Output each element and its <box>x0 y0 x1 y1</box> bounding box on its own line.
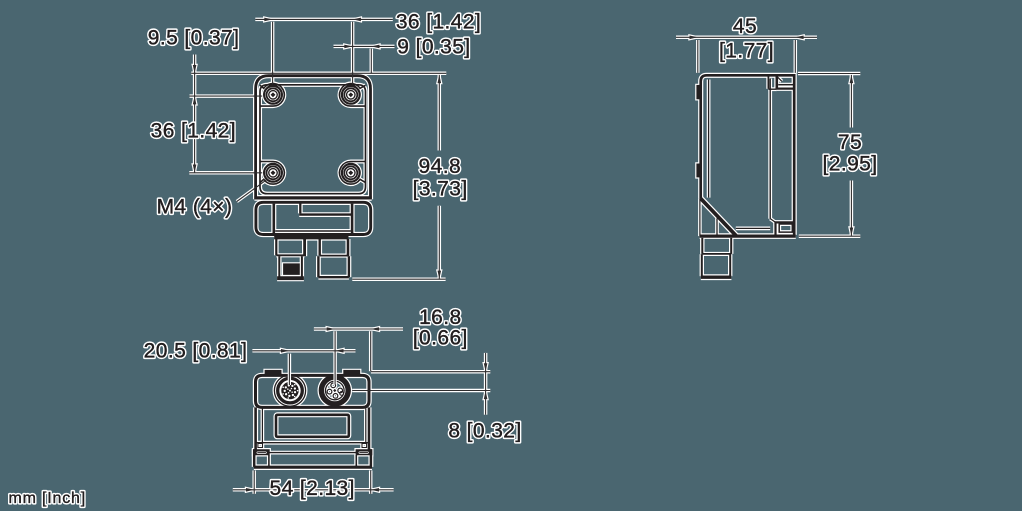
svg-text:54 [2.13]: 54 [2.13] <box>270 477 355 500</box>
svg-text:[1.77]: [1.77] <box>719 40 774 63</box>
svg-text:[3.73]: [3.73] <box>413 178 468 201</box>
svg-text:45: 45 <box>733 15 757 38</box>
svg-text:8 [0.32]: 8 [0.32] <box>448 420 521 443</box>
svg-text:[0.66]: [0.66] <box>413 327 468 350</box>
svg-text:20.5 [0.81]: 20.5 [0.81] <box>144 340 248 363</box>
svg-text:94.8: 94.8 <box>419 155 461 178</box>
svg-text:9 [0.35]: 9 [0.35] <box>397 36 470 59</box>
svg-text:[2.95]: [2.95] <box>823 153 878 176</box>
svg-text:9.5 [0.37]: 9.5 [0.37] <box>148 27 240 50</box>
svg-text:75: 75 <box>838 131 862 154</box>
svg-text:36 [1.42]: 36 [1.42] <box>151 120 236 143</box>
svg-text:36 [1.42]: 36 [1.42] <box>396 11 481 34</box>
svg-text:mm [Inch]: mm [Inch] <box>9 490 86 507</box>
svg-text:M4 (4×): M4 (4×) <box>157 196 233 219</box>
